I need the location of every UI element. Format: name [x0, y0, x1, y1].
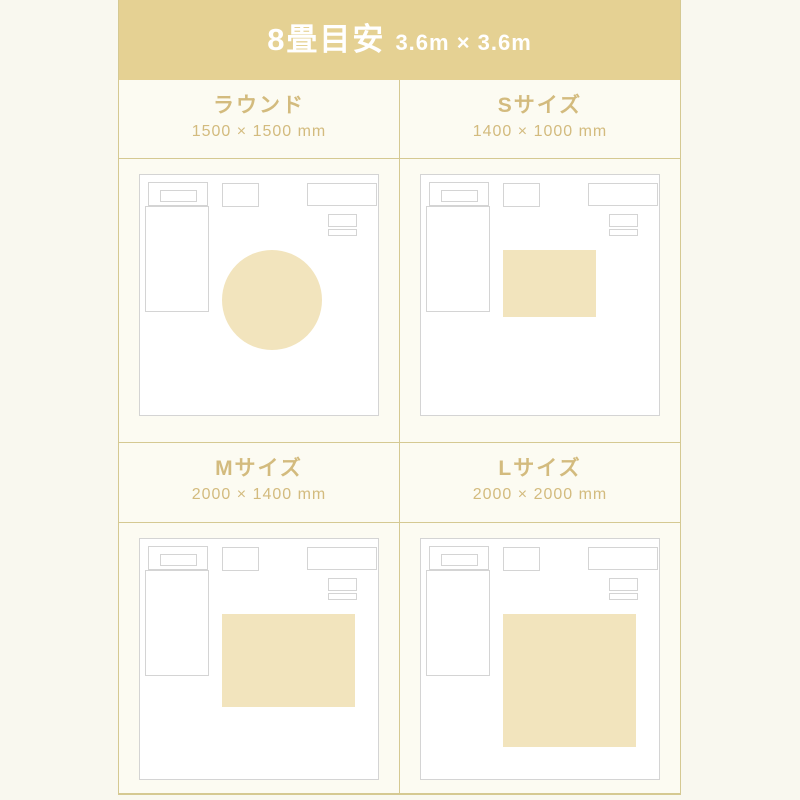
room-floor-plan	[139, 174, 379, 416]
header-band: 8畳目安 3.6m × 3.6m	[119, 0, 680, 80]
size-dimensions: 1500 × 1500 mm	[119, 123, 399, 141]
chair-back-icon	[328, 593, 357, 600]
size-row-bottom: Mサイズ 2000 × 1400 mm Lサイズ 2000 × 2000 mm	[119, 443, 680, 793]
room-floor-plan	[139, 538, 379, 780]
side-table-icon	[222, 183, 259, 207]
size-label-l: Lサイズ 2000 × 2000 mm	[400, 443, 680, 523]
size-label-s: Sサイズ 1400 × 1000 mm	[400, 80, 680, 159]
rug-size-guide-card: 8畳目安 3.6m × 3.6m ラウンド 1500 × 1500 mm Sサイ…	[118, 0, 681, 795]
bed-mattress-icon	[145, 206, 209, 312]
room-diagram-m	[119, 523, 399, 793]
tatami-size-title: 8畳目安	[267, 24, 385, 55]
chair-seat-icon	[609, 214, 638, 227]
desk-icon	[588, 183, 658, 206]
chair-seat-icon	[609, 578, 638, 591]
bed-pillow-icon	[160, 190, 197, 202]
side-table-icon	[222, 547, 259, 571]
size-label-round: ラウンド 1500 × 1500 mm	[119, 80, 399, 159]
rug-l	[503, 614, 636, 747]
chair-back-icon	[609, 593, 638, 600]
side-table-icon	[503, 183, 540, 207]
chair-seat-icon	[328, 578, 357, 591]
section-s-size: Sサイズ 1400 × 1000 mm	[400, 80, 680, 443]
room-diagram-s	[400, 159, 680, 443]
side-table-icon	[503, 547, 540, 571]
bed-pillow-icon	[441, 190, 478, 202]
chair-seat-icon	[328, 214, 357, 227]
size-title: Mサイズ	[119, 456, 399, 481]
bed-mattress-icon	[426, 206, 490, 312]
chair-back-icon	[609, 229, 638, 236]
chair-back-icon	[328, 229, 357, 236]
bed-mattress-icon	[426, 570, 490, 676]
infographic-page: { "header": { "title": "8畳目安", "subtitle…	[0, 0, 800, 800]
size-label-m: Mサイズ 2000 × 1400 mm	[119, 443, 399, 523]
rug-m	[222, 614, 355, 707]
size-dimensions: 2000 × 2000 mm	[400, 486, 680, 504]
size-dimensions: 1400 × 1000 mm	[400, 123, 680, 141]
rug-s	[503, 250, 596, 317]
size-title: Lサイズ	[400, 456, 680, 481]
room-floor-plan	[420, 174, 660, 416]
room-diagram-round	[119, 159, 399, 443]
desk-icon	[307, 547, 377, 570]
room-diagram-l	[400, 523, 680, 793]
size-row-top: ラウンド 1500 × 1500 mm Sサイズ 1400 × 1000 mm	[119, 80, 680, 443]
size-title: Sサイズ	[400, 93, 680, 118]
bed-pillow-icon	[160, 554, 197, 566]
section-m-size: Mサイズ 2000 × 1400 mm	[119, 443, 400, 793]
room-dimensions-label: 3.6m × 3.6m	[395, 32, 531, 54]
desk-icon	[588, 547, 658, 570]
size-dimensions: 2000 × 1400 mm	[119, 486, 399, 504]
desk-icon	[307, 183, 377, 206]
room-floor-plan	[420, 538, 660, 780]
rug-round	[222, 250, 322, 350]
bed-mattress-icon	[145, 570, 209, 676]
bed-pillow-icon	[441, 554, 478, 566]
section-round: ラウンド 1500 × 1500 mm	[119, 80, 400, 443]
size-title: ラウンド	[119, 93, 399, 118]
section-l-size: Lサイズ 2000 × 2000 mm	[400, 443, 680, 793]
